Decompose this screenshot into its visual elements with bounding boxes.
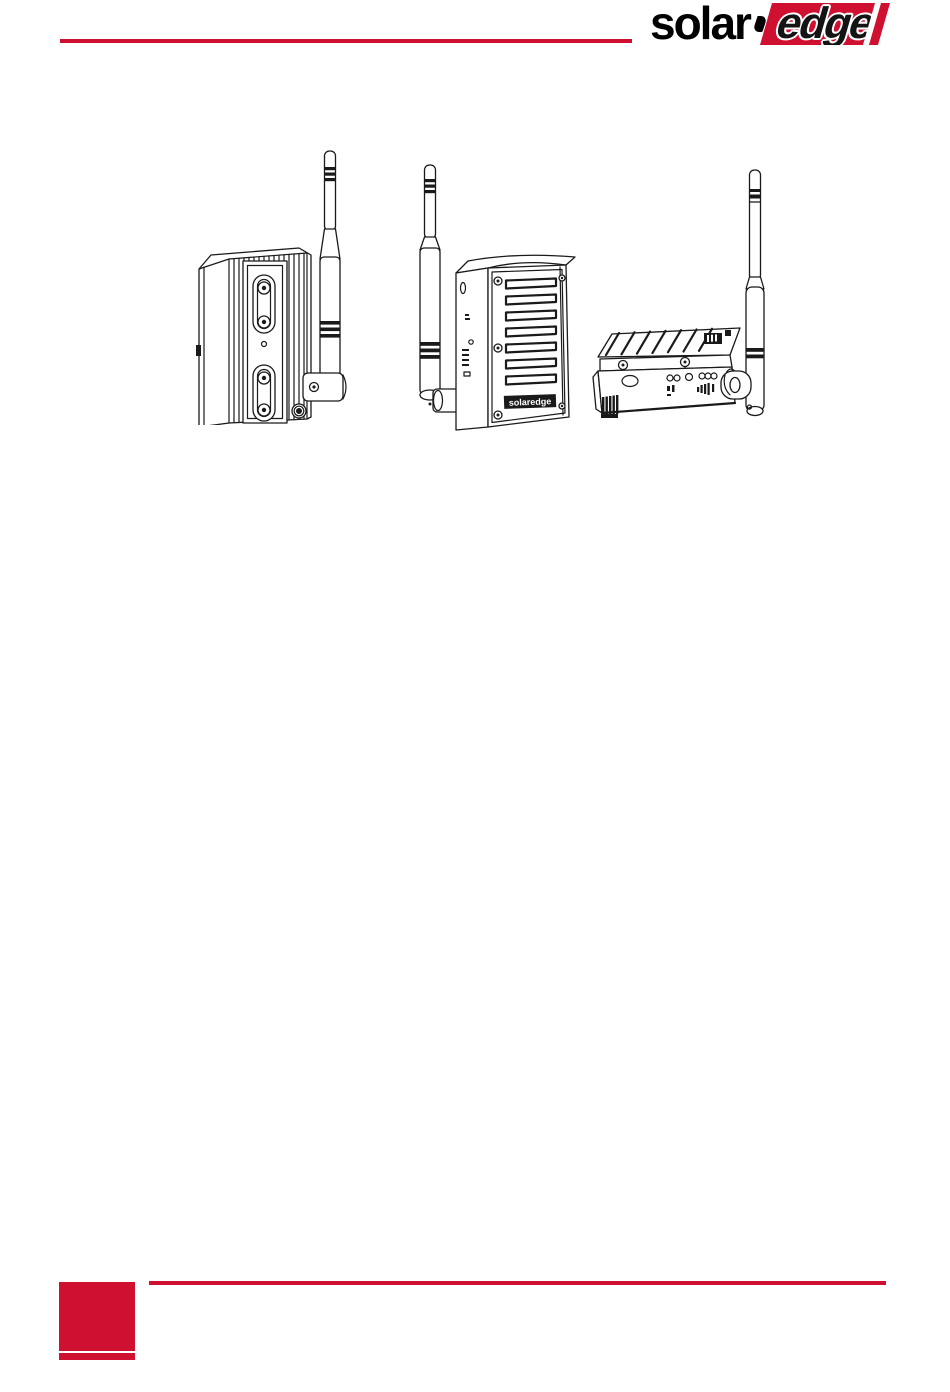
solaredge-logo: solar edge xyxy=(650,0,884,46)
solaredge-mini-logo: solaredge xyxy=(504,394,556,409)
logo-text-edge: edge xyxy=(772,3,879,45)
mounting-plate xyxy=(243,261,287,423)
document-page: solar edge xyxy=(0,0,950,1392)
front-face xyxy=(598,367,735,413)
horizontal-gateway-with-antenna-illustration xyxy=(592,165,777,423)
gateway-body xyxy=(593,328,740,418)
svg-text:solaredge: solaredge xyxy=(509,396,552,407)
logo-text-solar: solar xyxy=(650,0,750,46)
footer-rule xyxy=(149,1281,886,1285)
logo-edge-parallelogram: edge xyxy=(760,3,890,45)
vented-interface-box-with-antenna-illustration: solaredge xyxy=(405,152,580,440)
side-connector-detail xyxy=(196,345,201,356)
footer-accent-block xyxy=(59,1282,135,1351)
header-rule xyxy=(60,39,632,43)
antenna-elbow-mount xyxy=(721,371,751,399)
box-body: solaredge xyxy=(456,255,575,430)
inverter-rear-with-antenna-illustration xyxy=(195,93,365,425)
footer-accent-strip xyxy=(59,1353,135,1360)
